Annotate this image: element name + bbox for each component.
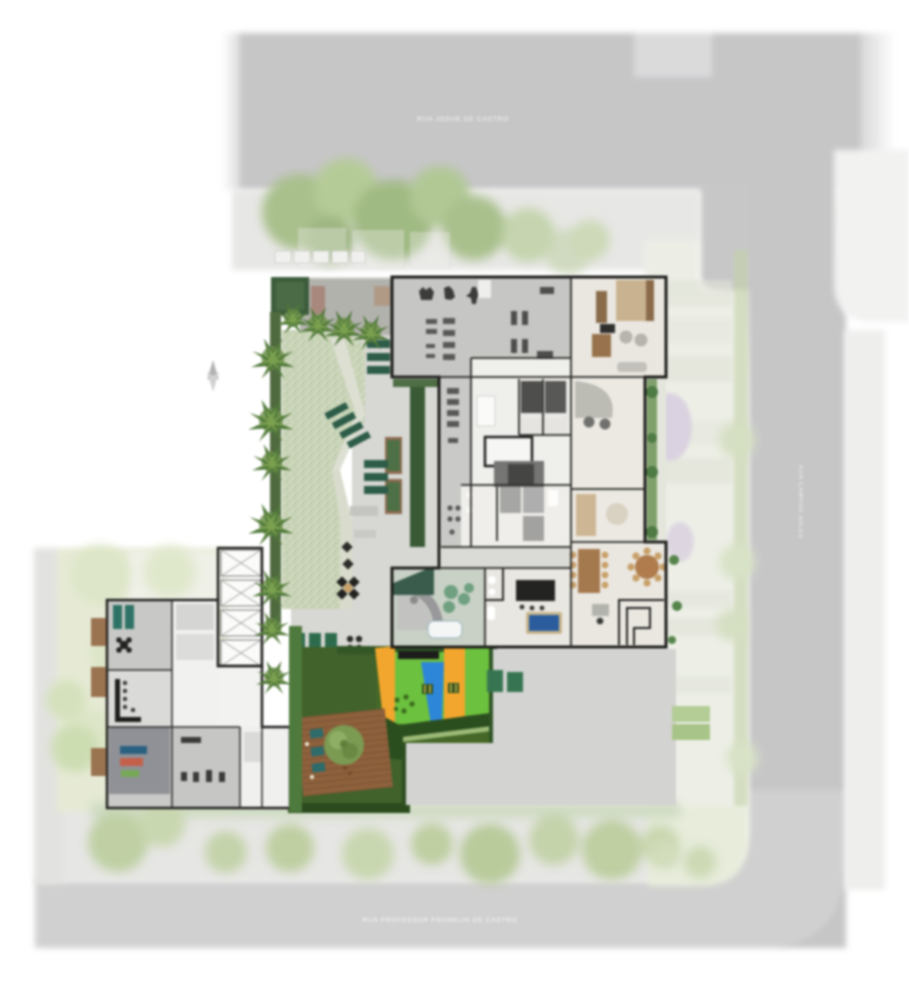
svg-text:RUA JOSUE DE CASTRO: RUA JOSUE DE CASTRO [417, 116, 509, 123]
svg-text:RUA PROFESSOR FRANKLIN DE CAST: RUA PROFESSOR FRANKLIN DE CASTRO [362, 917, 517, 924]
svg-text:RUA CAMPOS SALES: RUA CAMPOS SALES [797, 465, 803, 539]
